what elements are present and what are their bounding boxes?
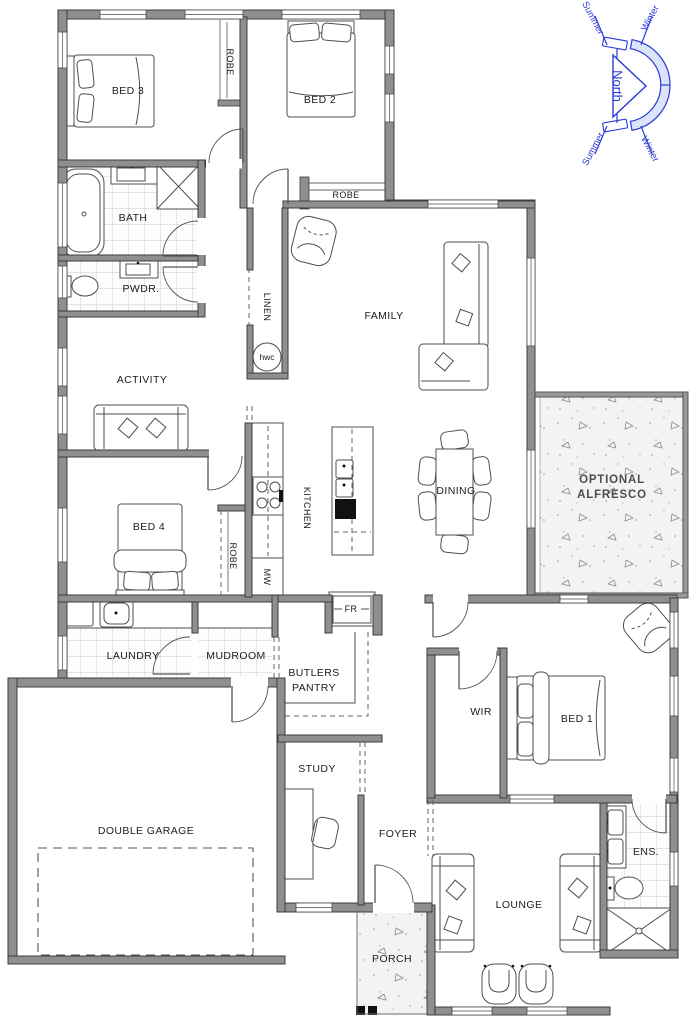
- bed1-furniture: [507, 598, 677, 764]
- lounge-tub-chair: [519, 964, 553, 1004]
- butlers-line1: BUTLERS: [288, 666, 339, 681]
- room-label-pwdr: PWDR.: [123, 283, 160, 295]
- winter-label-top: Winter: [639, 4, 662, 33]
- bed2-pillow: [321, 23, 351, 42]
- garage-door: [232, 686, 268, 722]
- label-fr: FR: [345, 604, 358, 614]
- hall-family-door: [253, 169, 288, 204]
- bed1-headboard: [507, 677, 517, 759]
- bed4-pillow: [151, 571, 178, 591]
- room-label-bed3: BED 3: [112, 85, 144, 97]
- room-label-robe-bed4: ROBE: [228, 542, 238, 569]
- window: [385, 94, 394, 122]
- winter-label-bottom: Winter: [638, 135, 661, 164]
- summer-label-bottom: Summer: [580, 131, 607, 168]
- bed3-door: [209, 129, 243, 163]
- room-label-ens: ENS.: [633, 846, 659, 858]
- dining-chair: [440, 429, 469, 451]
- entry-door: [375, 865, 413, 903]
- butlers-line2: PANTRY: [288, 681, 339, 696]
- room-label-wir: WIR: [470, 706, 492, 718]
- bed1-armchair: [619, 598, 678, 657]
- label-mw: MW: [262, 569, 272, 586]
- window: [670, 612, 678, 648]
- robe-shelf-lines: [308, 183, 385, 190]
- study-chair: [310, 816, 340, 850]
- dishwasher: [335, 499, 356, 519]
- room-label-robe-bed2: ROBE: [332, 190, 359, 200]
- lounge-sofa-left: [432, 854, 474, 952]
- lounge-furniture: [432, 854, 602, 1004]
- window: [527, 1007, 567, 1015]
- window: [58, 636, 67, 670]
- window: [58, 348, 67, 386]
- cooktop-controls: [279, 490, 283, 502]
- lounge-sofa-right: [560, 854, 602, 952]
- room-label-bath: BATH: [119, 212, 148, 224]
- shower-drain: [636, 928, 642, 934]
- room-label-bed1: BED 1: [561, 713, 593, 725]
- robe-wall-stub: [218, 100, 242, 106]
- window: [510, 795, 554, 803]
- window: [452, 1007, 492, 1015]
- window: [670, 852, 678, 886]
- summer-label-top: Summer: [579, 0, 606, 37]
- dining-chair: [418, 491, 438, 521]
- window: [58, 396, 67, 434]
- compass-tick-bottom: [602, 119, 627, 132]
- compass-rose: North Summer Winter Summer Winter: [579, 0, 670, 168]
- window: [560, 595, 588, 603]
- room-label-butlers-pantry: BUTLERS PANTRY: [288, 666, 339, 696]
- room-label-study: STUDY: [298, 763, 336, 775]
- room-label-alfresco: OPTIONAL ALFRESCO: [577, 473, 647, 503]
- dining-chair: [471, 456, 492, 486]
- wir-door: [459, 651, 497, 689]
- activity-sofa: [94, 405, 188, 451]
- bed1-pillow: [518, 684, 533, 718]
- window: [58, 32, 67, 68]
- hall-opening-dash: [247, 406, 252, 424]
- north-label: North: [610, 70, 625, 102]
- foyer-lounge-opening-dash: [428, 800, 433, 856]
- window: [527, 258, 535, 346]
- bed4-door: [208, 456, 242, 490]
- window: [282, 10, 360, 19]
- bed4-blanket-roll: [114, 550, 186, 572]
- bed1-blanket-roll: [533, 672, 549, 764]
- bed4-pillow: [123, 571, 150, 591]
- lounge-tub-chair: [482, 964, 516, 1004]
- room-label-activity: ACTIVITY: [117, 374, 167, 386]
- window: [670, 676, 678, 716]
- room-label-linen: LINEN: [262, 293, 272, 322]
- room-label-bed2: BED 2: [304, 94, 336, 106]
- window: [670, 758, 678, 792]
- room-label-kitchen: KITCHEN: [302, 487, 312, 529]
- window: [527, 450, 535, 528]
- bed1-hall-door: [433, 602, 468, 637]
- room-label-bed4: BED 4: [133, 521, 165, 533]
- family-furniture: [289, 214, 488, 390]
- label-hwc: hwc: [259, 352, 274, 362]
- room-label-robe-bed3: ROBE: [225, 48, 235, 75]
- family-armchair: [289, 214, 339, 268]
- bed2-pillow: [289, 23, 319, 42]
- room-label-mudroom: MUDROOM: [206, 650, 265, 662]
- window: [385, 46, 394, 74]
- window: [100, 10, 146, 19]
- bed3-pillow: [77, 59, 95, 88]
- family-sofa-return: [419, 344, 488, 390]
- room-label-porch: PORCH: [372, 953, 412, 965]
- mudroom-bench: [197, 599, 273, 628]
- floor-plan-drawing: North Summer Winter Summer Winter: [0, 0, 690, 1029]
- study-furniture: [279, 789, 340, 879]
- bed4-furniture: [114, 504, 186, 599]
- alfresco-line2: ALFRESCO: [577, 488, 647, 503]
- window: [58, 183, 67, 247]
- trough-drain: [115, 612, 118, 615]
- dining-chair: [440, 534, 469, 555]
- room-label-family: FAMILY: [365, 310, 404, 322]
- study-foyer-opening-dash: [360, 742, 365, 795]
- window: [58, 266, 67, 298]
- room-label-foyer: FOYER: [379, 828, 417, 840]
- window: [428, 200, 498, 208]
- bed1-pillow: [518, 722, 533, 756]
- alfresco-line1: OPTIONAL: [577, 473, 647, 488]
- bathtub: [62, 169, 104, 257]
- mudroom-opening-dash: [274, 637, 279, 678]
- garage-door-dashed-rect: [38, 848, 253, 955]
- window: [185, 10, 243, 19]
- pwdr-toilet-bowl: [72, 276, 98, 296]
- window: [296, 903, 332, 912]
- pwdr-tap: [137, 262, 140, 265]
- window: [58, 508, 67, 562]
- room-label-garage: DOUBLE GARAGE: [98, 825, 194, 837]
- room-label-lounge: LOUNGE: [496, 899, 543, 911]
- bed3-pillow: [77, 93, 95, 122]
- floor-plan-page: North Summer Winter Summer Winter BED 3 …: [0, 0, 690, 1029]
- ens-toilet-bowl: [615, 877, 643, 899]
- room-label-laundry: LAUNDRY: [107, 650, 160, 662]
- dining-chair: [418, 456, 438, 486]
- room-label-dining: DINING: [436, 485, 475, 497]
